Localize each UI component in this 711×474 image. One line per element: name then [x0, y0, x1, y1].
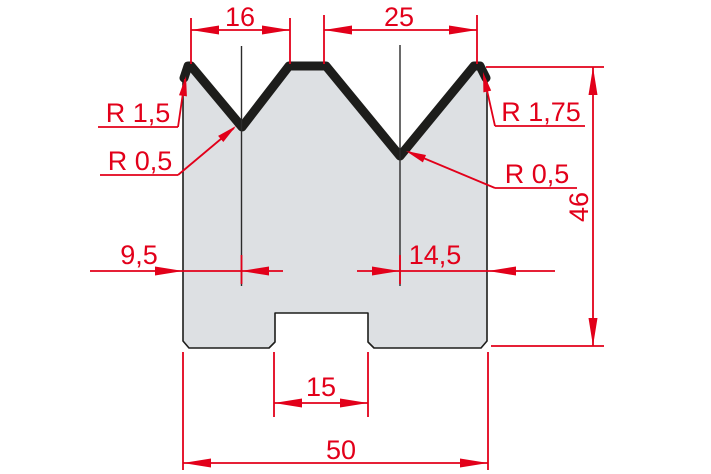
arrowhead-left: [274, 399, 302, 408]
dim-label-9-5: 9,5: [120, 240, 158, 270]
dim-label-46: 46: [564, 192, 594, 222]
dim-label-14-5: 14,5: [409, 240, 462, 270]
arrowhead-bottom: [589, 318, 598, 346]
arrowhead-right: [262, 26, 290, 35]
arrowhead-right: [460, 459, 488, 468]
arrowhead-left: [183, 459, 211, 468]
callout-radius-top-right: R 1,75: [483, 72, 585, 127]
dim-label-50: 50: [326, 435, 356, 465]
arrowhead-left: [324, 26, 352, 35]
arrowhead-right: [340, 399, 368, 408]
arrowhead-left: [191, 26, 219, 35]
callout-radius-top-left: R 1,5: [98, 76, 187, 128]
radius-label-r0-5-right: R 0,5: [505, 159, 570, 189]
two-v-die-drawing: 16 25 R 1,5 R 0,5: [0, 0, 711, 474]
arrowhead-right: [449, 26, 477, 35]
die-body: [183, 66, 487, 348]
dim-label-15: 15: [306, 372, 336, 402]
dim-label-25: 25: [384, 2, 414, 32]
arrowhead-top: [589, 67, 598, 95]
dimension-total-width: 50: [183, 352, 488, 470]
radius-label-r1-5: R 1,5: [106, 98, 171, 128]
arrowhead-at-edge: [155, 267, 183, 276]
dim-label-16: 16: [225, 2, 255, 32]
dimension-slot-width: 15: [274, 352, 368, 417]
radius-label-r0-5-left: R 0,5: [108, 146, 173, 176]
radius-label-r1-75: R 1,75: [501, 97, 581, 127]
arrowhead-at-edge: [488, 267, 516, 276]
dimension-v-left-opening: 16: [191, 2, 290, 64]
technical-drawing-canvas: 16 25 R 1,5 R 0,5: [0, 0, 711, 474]
